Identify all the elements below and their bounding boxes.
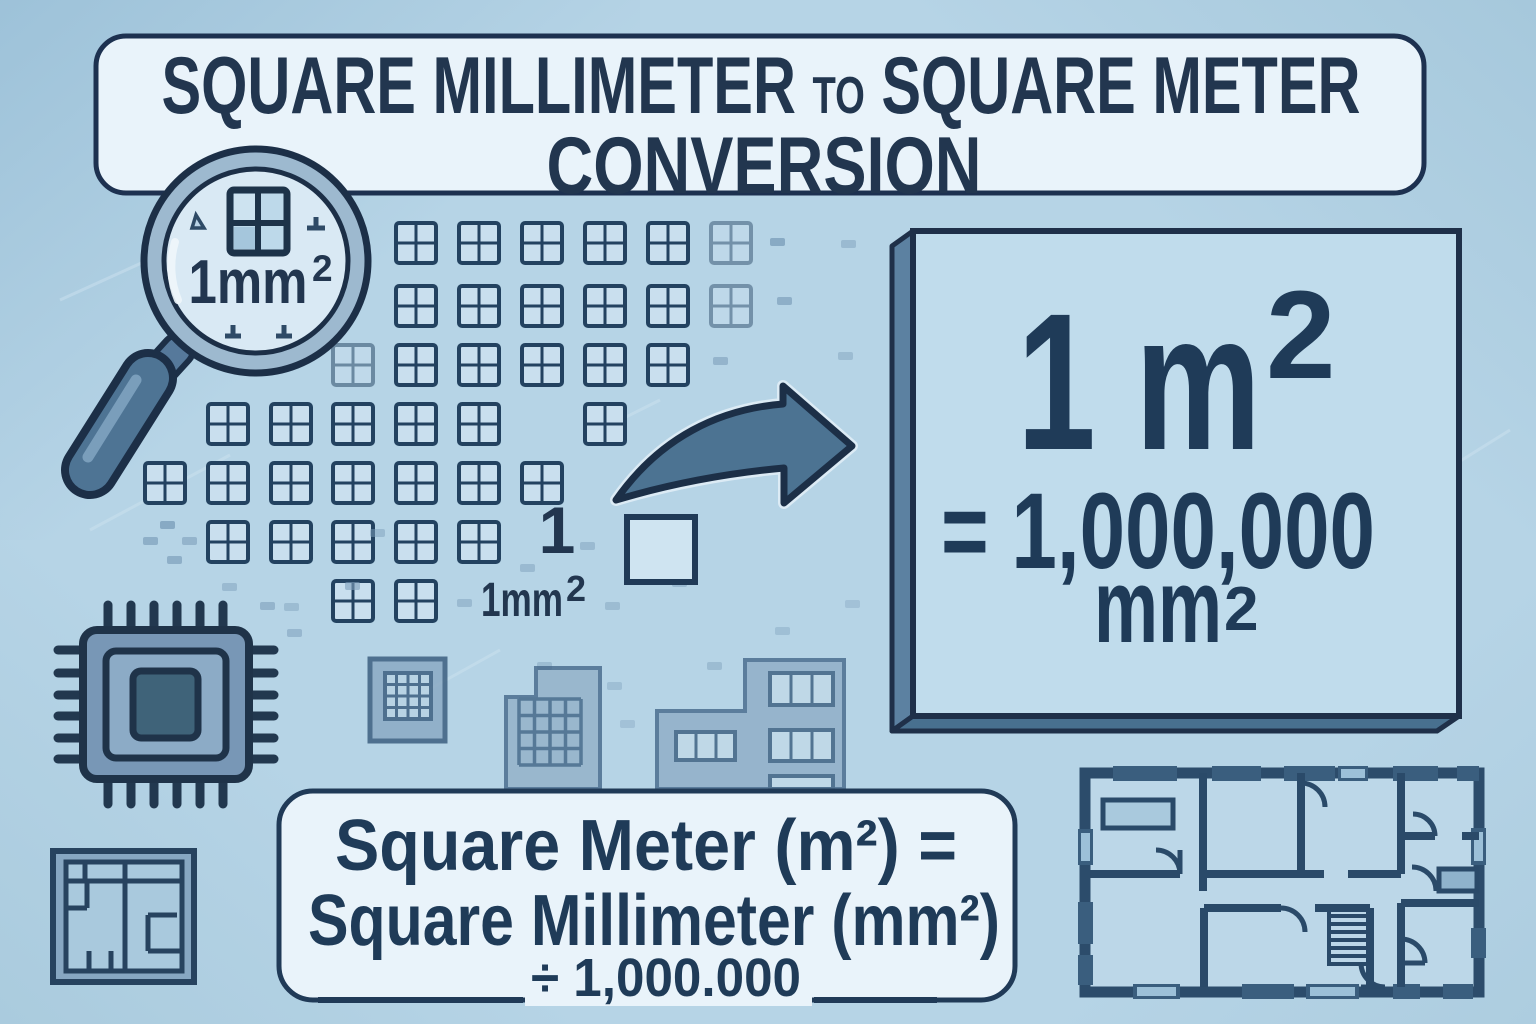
svg-text:1mm: 1mm xyxy=(481,574,563,627)
svg-text:÷ 1,000.000: ÷ 1,000.000 xyxy=(531,948,801,1008)
svg-text:2: 2 xyxy=(1266,266,1336,405)
svg-text:2: 2 xyxy=(312,248,333,289)
svg-text:SQUARE MILLIMETER TO SQUARE ME: SQUARE MILLIMETER TO SQUARE METER xyxy=(162,41,1361,131)
svg-text:CONVERSION: CONVERSION xyxy=(547,121,982,211)
svg-text:2: 2 xyxy=(566,568,586,609)
svg-text:2: 2 xyxy=(1224,575,1258,644)
svg-text:1: 1 xyxy=(539,493,576,567)
svg-text:1mm: 1mm xyxy=(189,248,308,317)
svg-text:Square Meter (m²) =: Square Meter (m²) = xyxy=(335,806,957,886)
svg-text:1 m: 1 m xyxy=(1017,273,1261,491)
svg-text:mm: mm xyxy=(1094,548,1222,665)
